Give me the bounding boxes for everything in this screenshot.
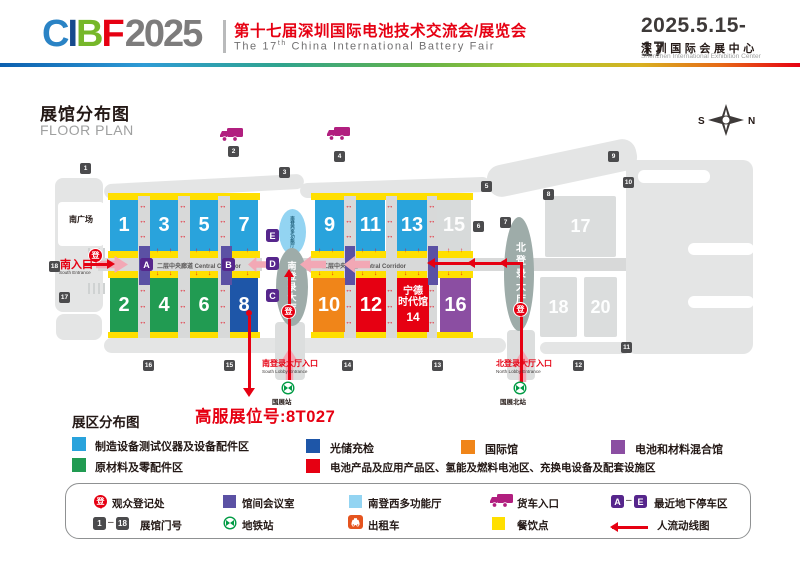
floorplan-title-en: FLOOR PLAN xyxy=(40,122,134,138)
booth-number-callout: 高服展位号:8T027 xyxy=(195,403,335,427)
gate-10-badge: 10 xyxy=(623,177,634,188)
parking-badge-b: B xyxy=(222,258,235,271)
logo-letter: B xyxy=(76,13,101,55)
booth-callout-line xyxy=(248,316,251,388)
flow-arrow-icon xyxy=(386,318,394,326)
fair-title-en: The 17th China International Battery Fai… xyxy=(234,40,495,53)
zone-swatch-mixed xyxy=(611,440,625,454)
flow-arrow-icon xyxy=(428,232,436,240)
gate-1-badge: 1 xyxy=(80,163,91,174)
flow-arrow-icon xyxy=(447,271,450,278)
parking-badge-e: E xyxy=(266,229,279,242)
registration-icon: 登 xyxy=(513,302,528,317)
hall-14-label-line1: 宁德 xyxy=(403,286,423,298)
gate-17-badge: 17 xyxy=(59,292,70,303)
metro-station-icon xyxy=(281,381,295,395)
hall-11: 11 xyxy=(356,200,385,251)
zone-label-storage: 光储充检 xyxy=(330,440,374,456)
parking-badge-a: A xyxy=(140,258,153,271)
flow-arrow-icon xyxy=(345,202,353,210)
flow-arrow-icon xyxy=(460,248,463,255)
building-cutout xyxy=(688,296,754,308)
flow-arrow-icon xyxy=(345,318,353,326)
flow-arrow-icon xyxy=(246,248,249,255)
facility-label-registration: 观众登记处 xyxy=(112,496,165,511)
fair-title-en-sup: th xyxy=(278,40,287,47)
gate-16-badge: 16 xyxy=(143,360,154,371)
flow-arrow-icon xyxy=(417,248,420,255)
taxi-icon xyxy=(348,515,363,529)
parking-badge-a-legend: A xyxy=(611,495,624,508)
fair-title-en-pre: The 17 xyxy=(234,41,278,53)
gate-8-badge: 8 xyxy=(543,189,554,200)
flow-arrowhead xyxy=(284,264,294,277)
flow-arrow-icon xyxy=(345,286,353,294)
zone-legend-heading: 展区分布图 xyxy=(72,411,140,431)
north-lobby-entrance-label-cn: 北登录大厅入口 xyxy=(496,358,552,369)
south-entrance-label-en: South Entrance xyxy=(59,270,91,275)
zone-label-international: 国际馆 xyxy=(485,441,518,457)
hall-5: 5 xyxy=(190,200,218,251)
flow-arrow-icon xyxy=(428,302,436,310)
flow-arrow-icon xyxy=(208,248,211,255)
hall-17: 17 xyxy=(545,196,616,257)
flow-arrow-icon xyxy=(318,271,321,278)
hall-18: 18 xyxy=(540,277,577,337)
truck-icon xyxy=(488,492,514,509)
flow-arrow-icon xyxy=(179,202,187,210)
logo-letter: C xyxy=(42,13,67,55)
gate-badge-to: 18 xyxy=(116,517,129,530)
flow-arrow-icon xyxy=(139,202,147,210)
zone-label-equipment: 制造设备测试仪器及设备配件区 xyxy=(95,438,249,454)
central-corridor xyxy=(532,258,626,271)
booth-callout-arrowhead xyxy=(243,388,255,403)
parking-badge-e-legend: E xyxy=(634,495,647,508)
hall-3: 3 xyxy=(150,200,178,251)
header-gradient-bar xyxy=(0,63,800,67)
flow-arrow-icon xyxy=(447,248,450,255)
flow-arrow-icon xyxy=(195,271,198,278)
flow-arrow-icon xyxy=(169,271,172,278)
flow-arrowhead xyxy=(107,259,120,269)
zone-swatch-battery-products xyxy=(306,459,320,473)
cibf-floorplan-page: CIBF2025 第十七届深圳国际电池技术交流会/展览会 The 17th Ch… xyxy=(0,0,800,565)
gate-7-badge: 7 xyxy=(500,217,511,228)
venue-name-en: Shenzhen International Exhibition Center xyxy=(641,53,761,60)
hall-13: 13 xyxy=(397,200,427,251)
flow-arrow-icon xyxy=(404,271,407,278)
flow-arrow-icon xyxy=(179,286,187,294)
flow-arrow-icon xyxy=(361,248,364,255)
hatch-pattern xyxy=(88,283,106,294)
gate-12-badge: 12 xyxy=(573,360,584,371)
hall-15: 15 xyxy=(437,200,471,251)
flow-arrow-icon xyxy=(428,286,436,294)
zone-swatch-storage xyxy=(306,439,320,453)
flow-arrowhead xyxy=(462,258,475,268)
hall-16: 16 xyxy=(440,278,471,332)
flow-arrow-icon xyxy=(139,302,147,310)
flow-arrow-icon xyxy=(139,217,147,225)
zone-swatch-materials xyxy=(72,458,86,472)
facility-label-multi-hall: 南登西多功能厅 xyxy=(368,496,442,511)
hall-14-number: 14 xyxy=(406,311,419,325)
gate-2-badge: 2 xyxy=(228,146,239,157)
building-cutout xyxy=(688,243,754,255)
parking-badge-c: C xyxy=(266,289,279,302)
fair-title-cn: 第十七届深圳国际电池技术交流会/展览会 xyxy=(234,19,527,41)
flow-arrow-icon xyxy=(404,248,407,255)
gate-3-badge: 3 xyxy=(279,167,290,178)
flow-arrow-icon xyxy=(179,232,187,240)
flow-arrow-icon xyxy=(374,271,377,278)
flow-arrow-icon xyxy=(428,318,436,326)
zone-swatch-equipment xyxy=(72,437,86,451)
logo-divider xyxy=(223,20,226,53)
hall-8: 8 xyxy=(230,278,258,332)
zone-swatch-international xyxy=(461,440,475,454)
flow-arrow-icon xyxy=(386,217,394,225)
flow-arrow-icon xyxy=(139,318,147,326)
cibf-logo: CIBF2025 xyxy=(42,12,201,56)
hall-1: 1 xyxy=(110,200,138,251)
gate-4-badge: 4 xyxy=(334,151,345,162)
flow-arrow-icon xyxy=(169,248,172,255)
flow-arrow-icon xyxy=(156,271,159,278)
flow-arrowhead xyxy=(422,258,435,268)
hall-7: 7 xyxy=(230,200,258,251)
gate-11-badge: 11 xyxy=(621,342,632,353)
meeting-room-swatch xyxy=(223,495,236,508)
flow-legend-arrowhead xyxy=(605,522,618,532)
south-lobby-entrance-label-en: South Lobby Entrance xyxy=(262,369,307,374)
facility-label-metro: 地铁站 xyxy=(242,518,274,533)
flow-arrow-icon xyxy=(219,286,227,294)
facility-label-dining: 餐饮点 xyxy=(517,518,549,533)
hall-14-catl: 宁德 时代馆 14 xyxy=(397,278,429,332)
flow-arrow-icon xyxy=(179,318,187,326)
flow-arrow-icon xyxy=(139,286,147,294)
flow-arrow-icon xyxy=(246,271,249,278)
registration-icon: 登 xyxy=(93,494,108,509)
gate-13-badge: 13 xyxy=(432,360,443,371)
gate-14-badge: 14 xyxy=(342,360,353,371)
hall-6: 6 xyxy=(190,278,218,332)
facility-label-meeting-room: 馆间会议室 xyxy=(242,496,295,511)
building-cutout xyxy=(638,170,710,183)
truck-icon xyxy=(218,126,244,143)
flow-arrow-icon xyxy=(386,286,394,294)
multi-hall-swatch xyxy=(349,495,362,508)
road-shape xyxy=(104,338,506,353)
south-lobby-entrance-label-cn: 南登录大厅入口 xyxy=(262,358,318,369)
hall-20: 20 xyxy=(584,277,617,337)
svg-text:S: S xyxy=(698,116,705,127)
parking-badge-d: D xyxy=(266,257,279,270)
dining-swatch xyxy=(492,517,505,530)
fair-title-en-post: China International Battery Fair xyxy=(287,41,495,53)
flow-arrow-icon xyxy=(208,271,211,278)
flow-arrow-icon xyxy=(386,202,394,210)
metro-station-icon xyxy=(223,516,237,530)
truck-icon xyxy=(325,125,351,142)
flow-arrowhead xyxy=(494,258,507,268)
hall-12: 12 xyxy=(356,278,386,332)
flow-arrow-icon xyxy=(318,248,321,255)
registration-icon: 登 xyxy=(281,304,296,319)
range-dash xyxy=(108,517,114,528)
flow-arrow-icon xyxy=(179,217,187,225)
flow-arrow-icon xyxy=(219,232,227,240)
flow-arrow-icon xyxy=(195,248,198,255)
hall-2: 2 xyxy=(110,278,138,332)
facility-label-parking: 最近地下停车区 xyxy=(654,496,728,511)
building-shape xyxy=(56,314,102,340)
metro-station-icon xyxy=(513,381,527,395)
flow-arrow-icon xyxy=(460,271,463,278)
road-shape xyxy=(540,342,630,354)
facility-label-gate-numbers: 展馆门号 xyxy=(140,518,182,533)
flow-arrow-icon xyxy=(179,302,187,310)
flow-arrow-icon xyxy=(345,302,353,310)
flow-arrow-icon xyxy=(374,248,377,255)
flow-line xyxy=(430,262,522,265)
flow-arrow-icon xyxy=(331,271,334,278)
flow-arrow-icon xyxy=(219,217,227,225)
zone-label-mixed: 电池和材料混合馆 xyxy=(635,441,723,457)
flow-arrow-icon xyxy=(139,232,147,240)
logo-letter: I xyxy=(67,13,76,55)
flow-arrow-icon xyxy=(417,271,420,278)
gate-9-badge: 9 xyxy=(608,151,619,162)
building-shape xyxy=(626,160,753,354)
gate-badge-from: 1 xyxy=(93,517,106,530)
flow-arrow-icon xyxy=(361,271,364,278)
north-lobby-entrance-label-en: North Lobby Entrance xyxy=(496,369,541,374)
facility-label-truck-entrance: 货车入口 xyxy=(517,496,559,511)
road-shape xyxy=(484,137,639,200)
hall-4: 4 xyxy=(150,278,178,332)
svg-text:N: N xyxy=(748,116,755,127)
facility-label-flow: 人流动线图 xyxy=(657,518,710,533)
gate-15-badge: 15 xyxy=(224,360,235,371)
logo-year: 2025 xyxy=(125,13,202,55)
flow-arrow-icon xyxy=(428,202,436,210)
flow-arrow-icon xyxy=(331,248,334,255)
hall-9: 9 xyxy=(315,200,344,251)
hall-14-label-line2: 时代馆 xyxy=(398,297,428,309)
flow-arrow-icon xyxy=(386,232,394,240)
flow-arrow-icon xyxy=(219,302,227,310)
south-square: 南广场 xyxy=(58,202,104,246)
flow-arrow-icon xyxy=(428,217,436,225)
flow-arrow-icon xyxy=(345,217,353,225)
gate-5-badge: 5 xyxy=(481,181,492,192)
logo-letter: F xyxy=(101,13,122,55)
flow-arrow-icon xyxy=(219,202,227,210)
facility-label-taxi: 出租车 xyxy=(368,518,400,533)
flow-arrow-icon xyxy=(219,318,227,326)
range-dash xyxy=(626,495,632,506)
flow-arrow-icon xyxy=(345,232,353,240)
compass-icon: S N xyxy=(690,100,762,144)
flow-arrow-icon xyxy=(156,248,159,255)
zone-label-materials: 原材料及零配件区 xyxy=(95,459,183,475)
gate-6-badge: 6 xyxy=(473,221,484,232)
metro-station-label: 国展北站 xyxy=(500,396,526,406)
zone-label-battery-products: 电池产品及应用产品区、氢能及燃料电池区、充换电设备及配套设施区 xyxy=(330,460,656,475)
hall-10: 10 xyxy=(313,278,345,332)
flow-arrow-icon xyxy=(386,302,394,310)
